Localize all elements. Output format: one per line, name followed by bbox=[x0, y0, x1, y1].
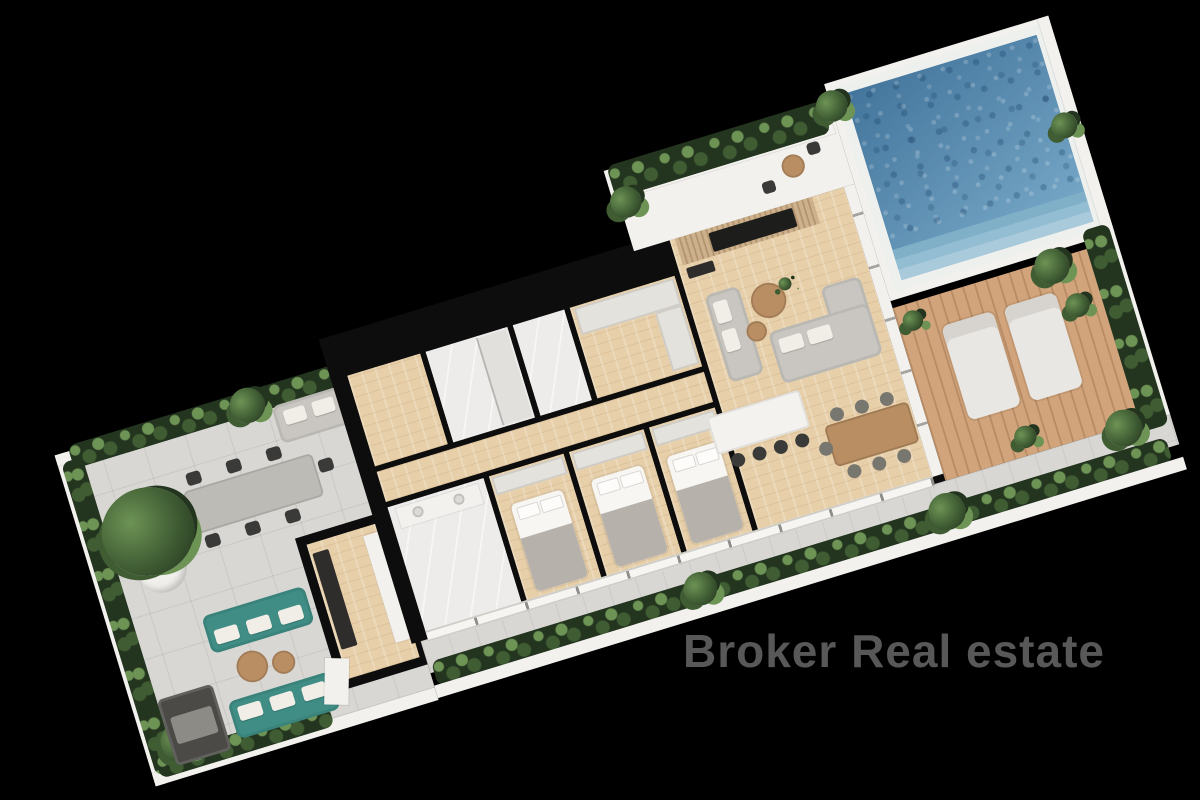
outdoor-chair bbox=[225, 458, 243, 475]
watermark-text: Broker Real estate bbox=[683, 624, 1105, 678]
sofa-cushion bbox=[778, 332, 805, 353]
teal-sofa-cushion bbox=[269, 690, 296, 711]
sofa-cushion bbox=[806, 324, 833, 345]
bed-pillow bbox=[539, 494, 564, 513]
outdoor-chair bbox=[185, 470, 203, 487]
bed-pillow bbox=[619, 470, 644, 489]
teal-sofa-cushion bbox=[213, 624, 240, 645]
floorplan-scene: Broker Real estate bbox=[0, 0, 1200, 800]
sofa-cushion bbox=[721, 327, 742, 353]
kitchen-terrace-door bbox=[324, 658, 349, 705]
bed-pillow bbox=[672, 454, 697, 473]
bed-pillow bbox=[596, 477, 621, 496]
teal-sofa-cushion bbox=[277, 604, 304, 625]
bed-pillow bbox=[516, 501, 541, 520]
daybed-blanket bbox=[170, 705, 219, 744]
teal-sofa-cushion bbox=[237, 700, 264, 721]
outdoor-sofa-cushion bbox=[311, 396, 337, 417]
teal-sofa-cushion bbox=[245, 614, 272, 635]
sofa-cushion bbox=[712, 299, 733, 325]
outdoor-sofa-cushion bbox=[282, 405, 308, 426]
outdoor-chair bbox=[265, 445, 283, 462]
